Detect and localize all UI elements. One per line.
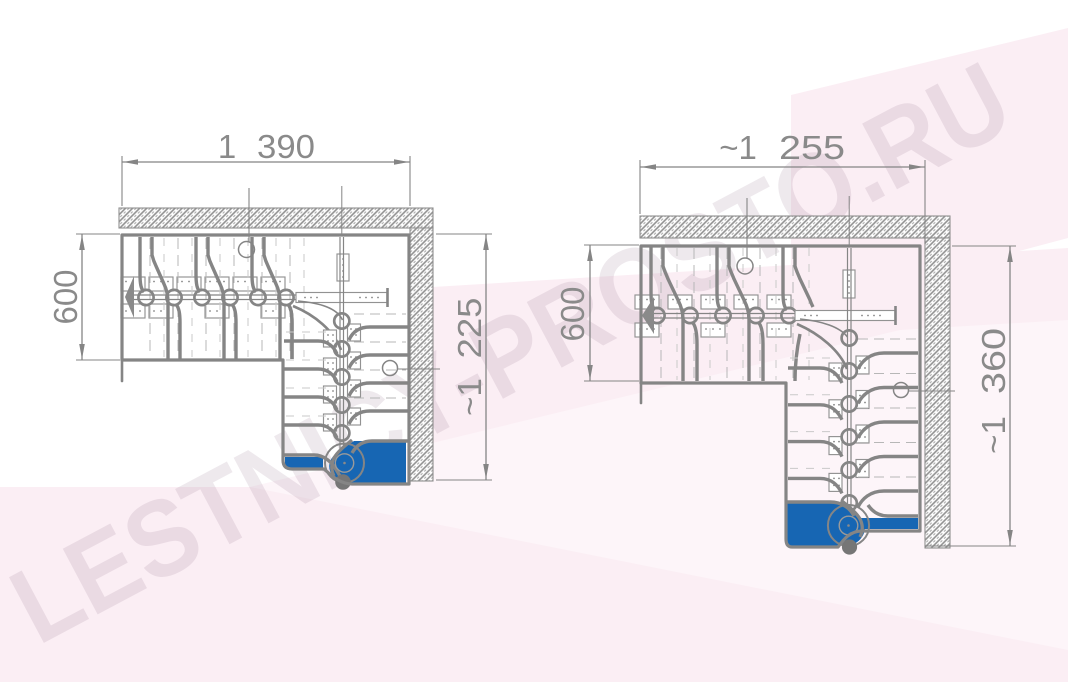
- svg-text:600: 600: [47, 270, 84, 325]
- svg-text:~1: ~1: [451, 378, 488, 416]
- svg-text:390: 390: [257, 128, 315, 165]
- svg-text:~1: ~1: [975, 416, 1012, 454]
- svg-text:~1: ~1: [719, 129, 757, 166]
- svg-text:600: 600: [554, 287, 591, 342]
- svg-text:1: 1: [218, 128, 236, 165]
- svg-text:360: 360: [975, 328, 1012, 394]
- svg-text:225: 225: [451, 298, 488, 359]
- svg-text:255: 255: [779, 129, 845, 166]
